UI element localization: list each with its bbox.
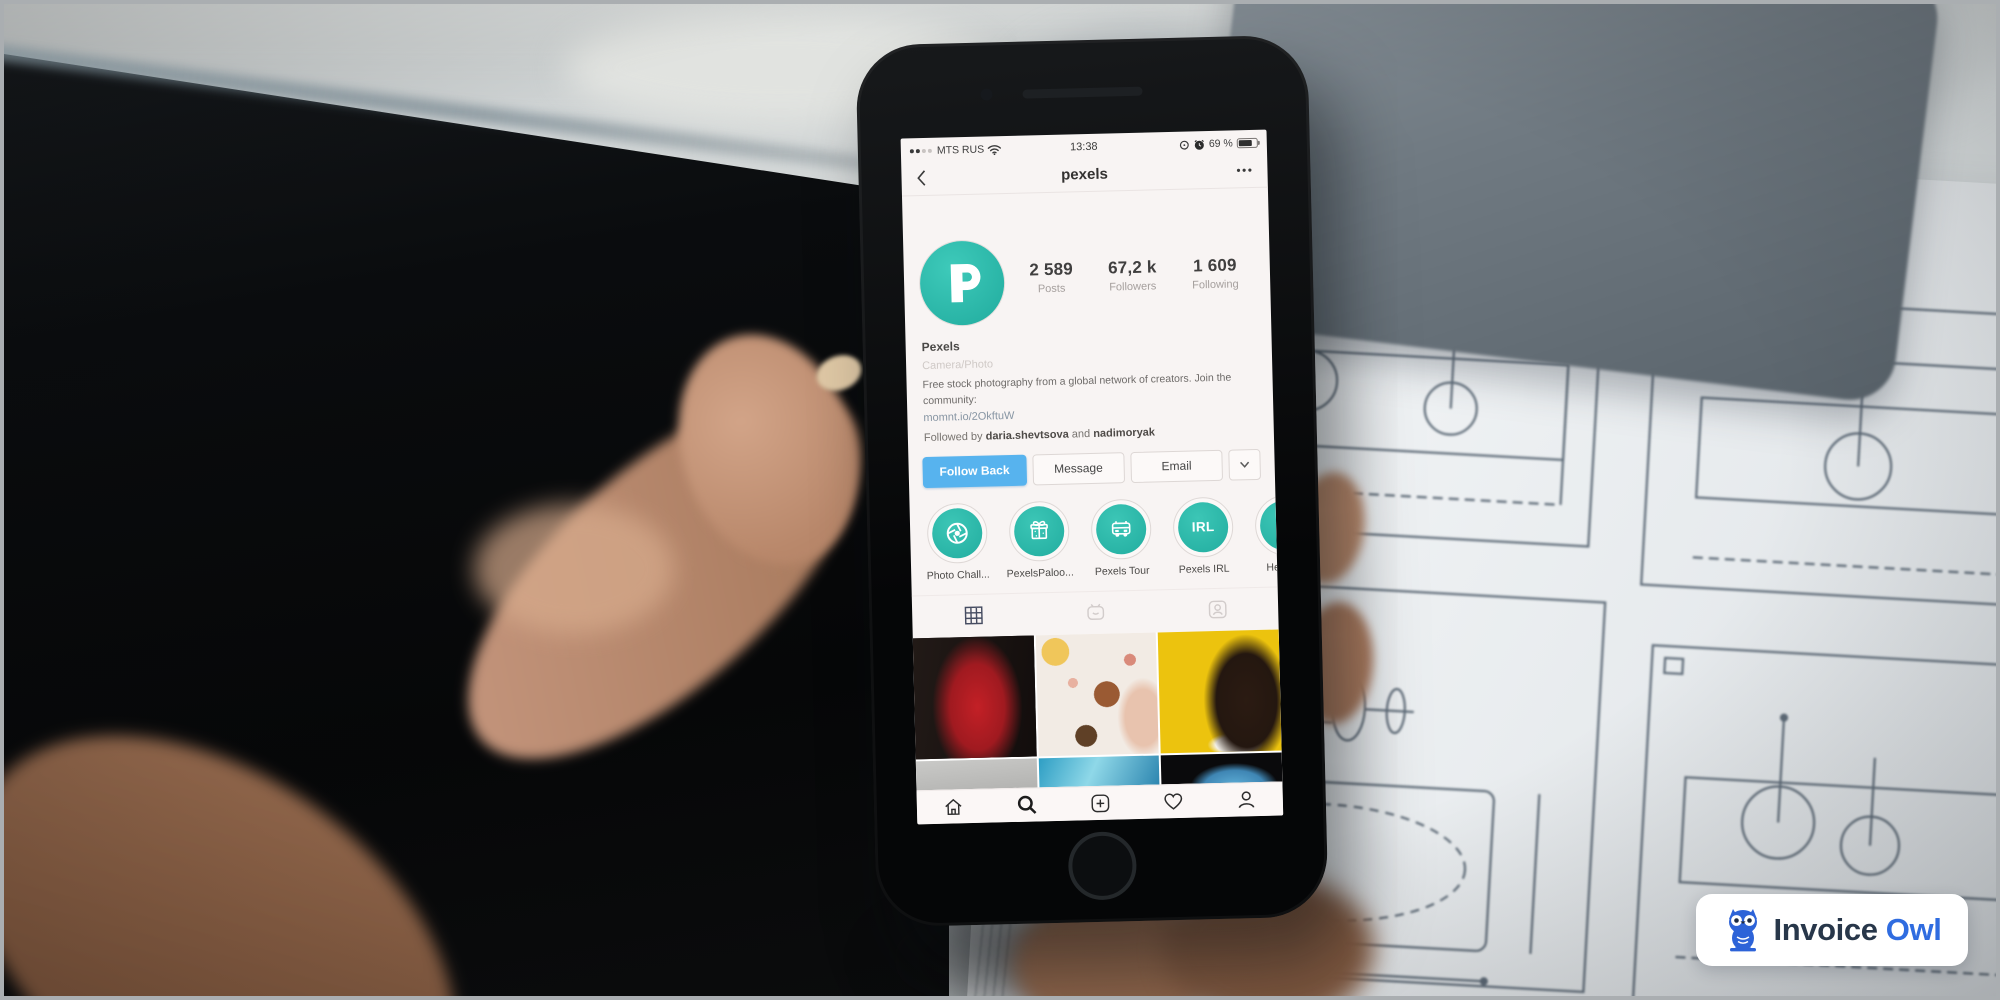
stat-following[interactable]: 1 609Following xyxy=(1191,255,1238,291)
signal-strength-icon xyxy=(910,149,932,154)
stat-followers[interactable]: 67,2 kFollowers xyxy=(1108,257,1157,293)
instagram-profile-screen: MTS RUS 13:38 69 % xyxy=(901,130,1284,825)
back-button[interactable] xyxy=(915,169,926,187)
followed-by-user-2[interactable]: nadimoryak xyxy=(1093,426,1155,440)
grid-photo-1[interactable] xyxy=(913,635,1037,759)
grid-photo-2[interactable] xyxy=(1035,632,1159,756)
message-button[interactable]: Message xyxy=(1032,452,1125,485)
gift-icon xyxy=(1025,517,1054,546)
story-highlights: Photo Chall... PexelsPaloo... xyxy=(909,480,1277,583)
photo-grid xyxy=(913,629,1283,790)
highlight-pexels-irl[interactable]: IRL Pexels IRL xyxy=(1161,496,1245,576)
search-tab[interactable] xyxy=(1015,793,1040,818)
van-icon xyxy=(1107,515,1136,544)
grid-icon xyxy=(961,604,985,628)
pexels-logo-icon xyxy=(919,240,1005,326)
brand-name-invoice: Invoice xyxy=(1774,912,1878,947)
profile-header: 2 589Posts 67,2 kFollowers 1 609Followin… xyxy=(902,188,1271,327)
grid-photo-6[interactable] xyxy=(1161,752,1282,784)
new-post-tab[interactable] xyxy=(1089,792,1113,816)
activity-tab[interactable] xyxy=(1162,790,1186,814)
igtv-icon xyxy=(1083,601,1107,625)
alarm-icon xyxy=(1194,139,1205,150)
brand-name-owl: Owl xyxy=(1886,912,1942,947)
invoice-owl-badge: Invoice Owl xyxy=(1696,894,1968,966)
carrier-label: MTS RUS xyxy=(937,144,985,157)
bio-text: Free stock photography from a global net… xyxy=(922,370,1257,410)
photo-scene: MTS RUS 13:38 69 % xyxy=(0,0,2000,1000)
profile-stats: 2 589Posts 67,2 kFollowers 1 609Followin… xyxy=(1012,254,1257,295)
phone-front-camera xyxy=(980,88,992,100)
owl-logo-icon xyxy=(1723,907,1763,953)
battery-icon xyxy=(1237,138,1258,149)
search-icon xyxy=(1015,793,1040,818)
star-icon xyxy=(1271,511,1278,540)
highlight-hero[interactable]: Hero T... xyxy=(1243,494,1277,574)
hand-knuckle-highlight xyxy=(474,504,674,634)
profile-username-title: pexels xyxy=(901,161,1267,187)
profile-bio: Pexels Camera/Photo Free stock photograp… xyxy=(905,318,1274,446)
tab-igtv[interactable] xyxy=(1034,600,1157,626)
grid-photo-5[interactable] xyxy=(1038,755,1159,787)
highlight-photo-challenge[interactable]: Photo Chall... xyxy=(916,502,1000,582)
wifi-icon xyxy=(987,144,1002,155)
tab-tagged[interactable] xyxy=(1156,597,1279,623)
home-icon xyxy=(942,795,966,819)
grid-photo-3[interactable] xyxy=(1158,629,1282,753)
stat-posts[interactable]: 2 589Posts xyxy=(1029,259,1073,295)
tab-grid[interactable] xyxy=(912,603,1035,629)
chevron-left-icon xyxy=(915,169,926,187)
more-actions-button[interactable] xyxy=(1228,449,1261,481)
phone-home-button[interactable] xyxy=(1068,831,1138,901)
heart-icon xyxy=(1162,790,1186,814)
avatar[interactable] xyxy=(919,240,1005,326)
tagged-icon xyxy=(1205,598,1229,622)
more-options-button[interactable]: ••• xyxy=(1236,163,1253,177)
orientation-lock-icon xyxy=(1179,139,1190,150)
profile-tab[interactable] xyxy=(1235,788,1259,812)
irl-text: IRL xyxy=(1192,520,1215,536)
plus-square-icon xyxy=(1089,792,1113,816)
home-tab[interactable] xyxy=(942,795,966,819)
aperture-icon xyxy=(943,519,972,548)
email-button[interactable]: Email xyxy=(1130,450,1223,483)
follow-back-button[interactable]: Follow Back xyxy=(922,455,1026,489)
battery-percent-label: 69 % xyxy=(1209,137,1233,150)
smartphone: MTS RUS 13:38 69 % xyxy=(855,35,1328,928)
grid-photo-4[interactable] xyxy=(916,758,1037,790)
highlight-pexels-tour[interactable]: Pexels Tour xyxy=(1079,498,1163,578)
followed-by-user-1[interactable]: daria.shevtsova xyxy=(985,428,1068,442)
person-icon xyxy=(1235,788,1259,812)
chevron-down-icon xyxy=(1240,461,1250,468)
highlight-pexelspalooza[interactable]: PexelsPaloo... xyxy=(997,500,1081,580)
phone-earpiece xyxy=(1022,87,1142,99)
